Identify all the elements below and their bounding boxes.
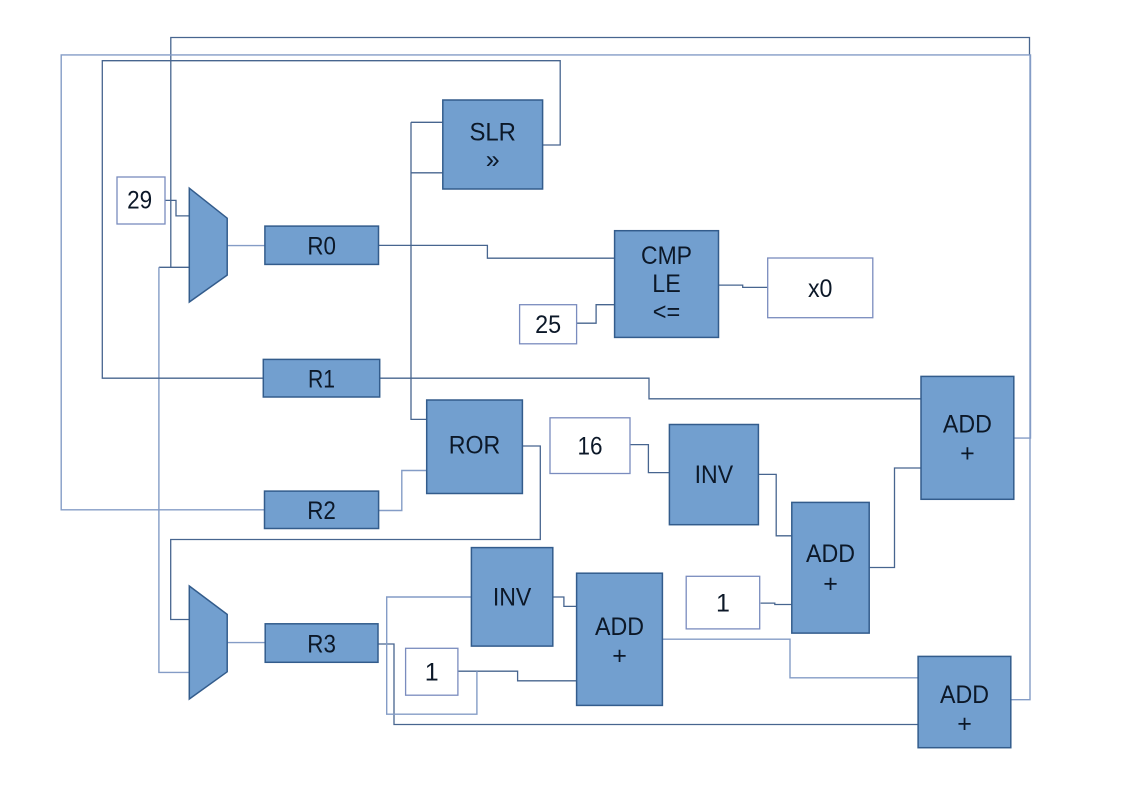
svg-text:INV: INV <box>493 583 532 611</box>
svg-text:ROR: ROR <box>449 432 501 460</box>
svg-text:ADD: ADD <box>940 681 989 709</box>
svg-text:<=: <= <box>653 298 681 326</box>
svg-text:R1: R1 <box>308 366 335 394</box>
svg-text:INV: INV <box>695 461 734 489</box>
svg-text:+: + <box>612 642 627 670</box>
svg-text:ADD: ADD <box>595 613 644 641</box>
svg-text:x0: x0 <box>808 275 833 303</box>
svg-text:29: 29 <box>127 186 152 214</box>
svg-text:R0: R0 <box>307 233 336 261</box>
svg-text:»: » <box>486 146 500 174</box>
svg-text:+: + <box>957 710 972 738</box>
svg-text:16: 16 <box>578 433 603 461</box>
svg-text:SLR: SLR <box>469 119 516 147</box>
svg-text:CMP: CMP <box>641 242 692 270</box>
svg-text:25: 25 <box>535 311 561 339</box>
svg-text:R2: R2 <box>307 497 336 525</box>
svg-text:1: 1 <box>716 590 730 618</box>
svg-text:+: + <box>960 440 975 468</box>
svg-text:ADD: ADD <box>943 411 992 439</box>
svg-text:LE: LE <box>652 270 681 298</box>
svg-text:1: 1 <box>425 659 439 687</box>
svg-text:+: + <box>823 570 838 598</box>
svg-text:ADD: ADD <box>806 540 855 568</box>
svg-text:R3: R3 <box>307 631 336 659</box>
